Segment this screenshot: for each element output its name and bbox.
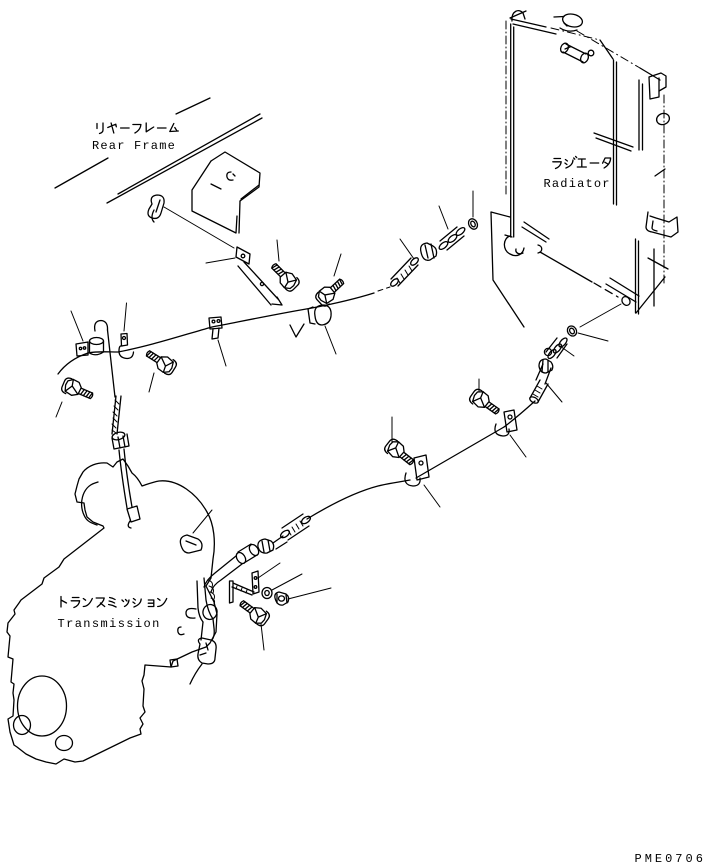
svg-text:Transmission: Transmission bbox=[58, 617, 161, 631]
svg-text:PME0706: PME0706 bbox=[635, 852, 703, 864]
svg-text:Radiator: Radiator bbox=[544, 177, 611, 191]
svg-text:Rear Frame: Rear Frame bbox=[92, 139, 176, 153]
